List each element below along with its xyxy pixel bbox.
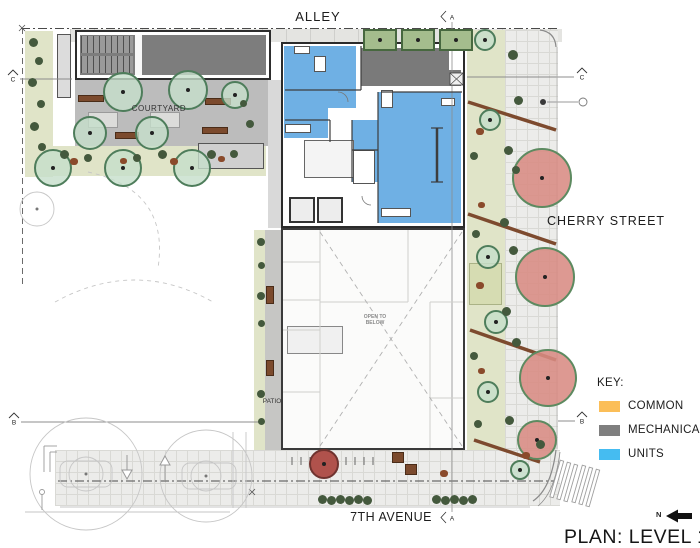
tree-leader-callout xyxy=(540,98,587,106)
courtyard-label: COURTYARD xyxy=(129,104,189,113)
key-item-common: COMMON xyxy=(599,400,683,412)
section-marker-a-bottom: A xyxy=(450,516,455,523)
cherry-green-tree-6 xyxy=(510,460,530,480)
groundcover xyxy=(478,202,485,208)
shrub xyxy=(28,78,37,87)
hedge-shrub xyxy=(318,495,327,504)
open-to-below-x xyxy=(320,232,462,446)
cherry-green-tree-5 xyxy=(477,381,499,403)
shrub xyxy=(258,418,265,425)
shrub xyxy=(508,50,518,60)
shrub xyxy=(502,307,511,316)
shrub xyxy=(505,416,514,425)
shrub xyxy=(84,154,92,162)
cherry-street-label: CHERRY STREET xyxy=(546,214,666,228)
shrub xyxy=(38,143,46,151)
units-swatch xyxy=(599,449,620,460)
context-linework xyxy=(20,172,252,530)
hedge-shrub xyxy=(468,495,477,504)
shrub xyxy=(512,338,521,347)
groundcover xyxy=(522,452,530,459)
shrub xyxy=(246,120,254,128)
shrub xyxy=(258,320,265,327)
key-item-mechanical: MECHANICAL xyxy=(599,424,700,436)
cherry-pink-tree-1 xyxy=(512,148,572,208)
courtyard-tree-5 xyxy=(135,116,169,150)
alley-hedge-planter-2 xyxy=(401,29,435,51)
mechanical-label: MECHANICAL xyxy=(628,424,700,436)
shrub xyxy=(536,440,545,449)
shrub xyxy=(230,150,238,158)
alley-hedge-planter-3 xyxy=(439,29,473,51)
shrub xyxy=(500,218,509,227)
groundcover xyxy=(476,128,484,135)
key-heading: KEY: xyxy=(597,377,624,389)
shrub xyxy=(133,154,141,162)
courtyard-tree-8 xyxy=(173,149,211,187)
shrub xyxy=(29,38,38,47)
groundcover xyxy=(476,282,484,289)
shrub xyxy=(257,390,265,398)
plaza-red-tree xyxy=(309,449,339,479)
groundcover xyxy=(440,470,448,477)
groundcover xyxy=(478,368,485,374)
site-plan-level-1: C C B B A A xyxy=(0,0,700,548)
shrub xyxy=(257,292,265,300)
shrub xyxy=(504,146,513,155)
grid-line-b xyxy=(9,412,587,422)
common-label: COMMON xyxy=(628,400,683,412)
hedge-shrub xyxy=(327,496,336,505)
shrub xyxy=(470,352,478,360)
alley-hedge-planter-1 xyxy=(363,29,397,51)
grid-marker-c-left: C xyxy=(11,77,16,84)
courtyard-bench-4 xyxy=(202,127,228,134)
shrub xyxy=(474,420,482,428)
cherry-green-tree-1 xyxy=(474,29,496,51)
groundcover xyxy=(218,156,225,162)
page-title: PLAN: LEVEL 1 xyxy=(564,526,700,548)
mechanical-swatch xyxy=(599,425,620,436)
upper-interior-walls xyxy=(285,46,463,223)
patio-label: PATIO xyxy=(252,398,292,405)
open-to-below-line2: BELOW xyxy=(355,320,395,326)
groundcover xyxy=(70,158,78,165)
cherry-pink-tree-3 xyxy=(519,349,577,407)
shrub xyxy=(509,246,518,255)
shrub xyxy=(60,150,69,159)
section-line-a xyxy=(441,11,452,523)
shrub xyxy=(472,230,480,238)
key-item-units: UNITS xyxy=(599,448,664,460)
north-label: N xyxy=(656,510,661,519)
grid-marker-c-right: C xyxy=(580,75,585,82)
shrub xyxy=(158,150,167,159)
grid-marker-b-right: B xyxy=(580,419,584,426)
hedge-shrub xyxy=(363,496,372,505)
shrub xyxy=(470,152,478,160)
shrub xyxy=(512,166,520,174)
groundcover xyxy=(120,158,127,164)
common-swatch xyxy=(599,401,620,412)
grid-marker-b-left: B xyxy=(12,420,16,427)
alley-label: ALLEY xyxy=(283,9,353,24)
hedge-shrub xyxy=(441,496,450,505)
hedge-shrub xyxy=(354,495,363,504)
groundcover xyxy=(170,158,178,165)
open-to-below-label: OPEN TO BELOW xyxy=(355,314,395,326)
units-label: UNITS xyxy=(628,448,664,460)
shrub xyxy=(258,262,265,269)
courtyard-bench-1 xyxy=(78,95,104,102)
shrub xyxy=(514,96,523,105)
courtyard-tree-4 xyxy=(73,116,107,150)
shrub xyxy=(207,150,216,159)
shrub xyxy=(240,100,247,107)
cherry-green-tree-3 xyxy=(476,245,500,269)
seventh-avenue-label: 7TH AVENUE xyxy=(346,510,436,524)
hedge-shrub xyxy=(345,496,354,505)
shrub xyxy=(35,57,43,65)
hedge-shrub xyxy=(450,495,459,504)
hedge-shrub xyxy=(336,495,345,504)
grid-line-c xyxy=(8,68,587,79)
north-arrow-icon xyxy=(666,510,692,523)
hedge-shrub xyxy=(432,495,441,504)
section-marker-a-top: A xyxy=(450,15,455,22)
shrub xyxy=(37,100,45,108)
lower-interior-lines xyxy=(283,230,463,448)
shrub xyxy=(30,122,39,131)
cherry-pink-tree-2 xyxy=(515,247,575,307)
shrub xyxy=(257,238,265,246)
hedge-shrub xyxy=(459,496,468,505)
traffic-arrows xyxy=(122,455,170,480)
